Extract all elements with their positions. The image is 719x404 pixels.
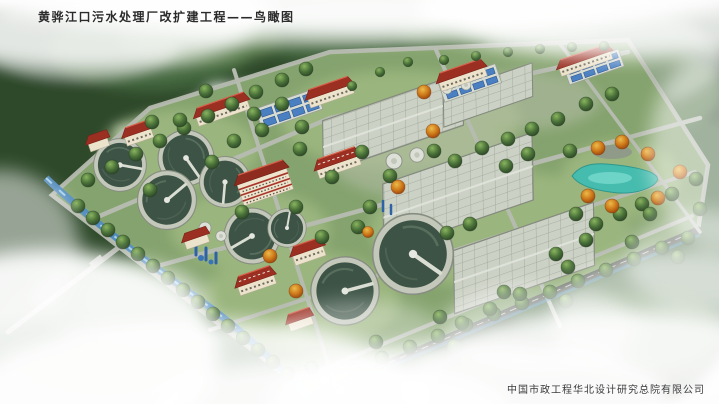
credit-text: 中国市政工程华北设计研究总院有限公司 [507, 381, 705, 396]
aerial-rendering-scene [0, 0, 719, 404]
storage-tank [410, 148, 424, 162]
storage-tank [386, 153, 402, 169]
title-text: 黄骅江口污水处理厂改扩建工程——鸟瞰图 [38, 8, 295, 25]
rendering-canvas: 黄骅江口污水处理厂改扩建工程——鸟瞰图 中国市政工程华北设计研究总院有限公司 [0, 0, 719, 404]
storage-tank [216, 231, 226, 241]
